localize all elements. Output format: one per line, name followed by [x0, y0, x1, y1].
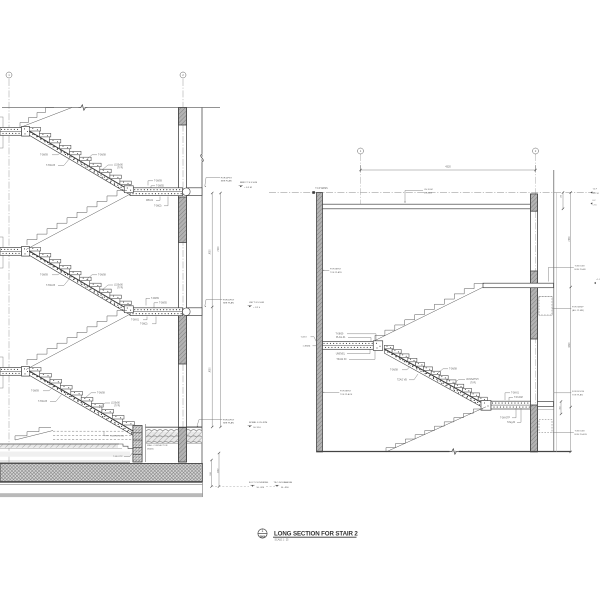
- svg-text:L150x90: L150x90: [114, 285, 124, 287]
- svg-text:SEE PLAN: SEE PLAN: [223, 421, 234, 424]
- svg-text:+5.1: +5.1: [596, 279, 600, 281]
- svg-text:ROBBL S CU-32M: ROBBL S CU-32M: [249, 422, 267, 424]
- svg-text:+ 6.3 M: + 6.3 M: [244, 187, 252, 189]
- svg-text:CH KUM: CH KUM: [424, 189, 433, 191]
- svg-text:T-06/08: T-06/08: [390, 370, 399, 372]
- svg-text:(TVF): (TVF): [470, 383, 476, 385]
- svg-text:T-08/05: T-08/05: [156, 186, 165, 188]
- svg-text:SCALE 1 : 25: SCALE 1 : 25: [275, 538, 290, 541]
- svg-text:T-06/08: T-06/08: [98, 155, 107, 157]
- svg-text:L150x90: L150x90: [114, 165, 124, 167]
- svg-text:T-08/09: T-08/09: [151, 298, 160, 300]
- svg-text:+ 3.2 k: + 3.2 k: [253, 307, 261, 309]
- svg-text:T-SW-05: T-SW-05: [46, 165, 56, 167]
- svg-text:FOR BENT: FOR BENT: [340, 391, 352, 393]
- svg-text:(TYP): (TYP): [117, 168, 123, 170]
- svg-text:(TYP): (TYP): [114, 406, 120, 408]
- svg-text:FOR DPSY: FOR DPSY: [223, 419, 235, 421]
- svg-text:T-08-01: T-08-01: [511, 393, 520, 395]
- svg-text:J600: J600: [210, 367, 212, 373]
- svg-text:FOR SNMP: FOR SNMP: [572, 307, 584, 309]
- svg-text:T-08/09: T-08/09: [31, 391, 40, 393]
- svg-text:TOE PLATE: TOE PLATE: [330, 271, 342, 274]
- svg-text:SL 31.0: SL 31.0: [253, 427, 261, 429]
- svg-text:FOR DPSY: FOR DPSY: [221, 177, 233, 179]
- svg-text:TZag-M: TZag-M: [507, 422, 515, 424]
- svg-text:TILO DOUBAEIGN: TILO DOUBAEIGN: [274, 481, 293, 484]
- svg-text:TOE PLAN: TOE PLAN: [572, 394, 583, 397]
- svg-text:1.4M(B): 1.4M(B): [303, 346, 311, 348]
- svg-text:T-08/09: T-08/09: [40, 275, 49, 277]
- svg-text:LONG SECTION FOR STAIR 2: LONG SECTION FOR STAIR 2: [274, 530, 358, 537]
- svg-text:T-08/09: T-08/09: [336, 334, 345, 336]
- svg-text:BOE PLAN: BOE PLAN: [575, 268, 586, 271]
- svg-text:B.O.T CLOVERING: B.O.T CLOVERING: [249, 482, 268, 484]
- svg-text:(ALL PLMN): (ALL PLMN): [572, 309, 584, 312]
- svg-text:L150x90: L150x90: [111, 403, 121, 405]
- svg-text:4320: 4320: [445, 166, 451, 169]
- svg-text:T-08-01: T-08-01: [131, 320, 140, 322]
- svg-text:FOR BENT: FOR BENT: [330, 269, 342, 271]
- svg-text:7430: 7430: [569, 236, 571, 242]
- svg-text:+8.1 M: +8.1 M: [593, 193, 600, 195]
- svg-text:T-08(2): T-08(2): [154, 206, 162, 208]
- svg-text:SL -350: SL -350: [281, 487, 289, 489]
- svg-text:LMY T.0.5 SLM: LMY T.0.5 SLM: [249, 302, 264, 304]
- svg-text:BOE PLACE: BOE PLACE: [575, 433, 588, 436]
- svg-text:T-08-OTP: T-08-OTP: [113, 456, 123, 458]
- svg-text:T-06/08: T-06/08: [449, 369, 458, 371]
- svg-text:(TYP): (TYP): [117, 288, 123, 290]
- svg-text:T.0.P: T.0.P: [593, 189, 598, 191]
- svg-text:FOR ROOM: FOR ROOM: [572, 391, 584, 393]
- svg-text:3604: 3604: [260, 535, 266, 539]
- svg-text:7200: 7200: [218, 246, 220, 252]
- svg-text:WALL CONNECTOR: WALL CONNECTOR: [147, 444, 168, 447]
- svg-text:SL -320: SL -320: [257, 487, 265, 489]
- svg-text:UCNSATSH: UCNSATSH: [466, 378, 479, 381]
- svg-text:SEE PLAN: SEE PLAN: [221, 179, 232, 182]
- svg-text:PLAG-01: PLAG-01: [336, 336, 346, 339]
- svg-text:T-08-OTP: T-08-OTP: [500, 418, 511, 420]
- svg-text:T-08-RM (TM): T-08-RM (TM): [110, 436, 124, 438]
- svg-text:TOB KUM: TOB KUM: [575, 266, 585, 268]
- svg-text:WB-01: WB-01: [146, 200, 154, 202]
- svg-text:BRIDY T.0.5 SLM: BRIDY T.0.5 SLM: [240, 182, 257, 184]
- svg-text:TZAGI 30: TZAGI 30: [336, 358, 347, 361]
- svg-text:TOB KUM: TOB KUM: [575, 431, 585, 433]
- svg-text:SEE PLAN: SEE PLAN: [223, 301, 234, 304]
- svg-text:T-08/09: T-08/09: [40, 155, 49, 157]
- svg-text:T-08/09: T-08/09: [154, 181, 163, 183]
- svg-text:MICBLB: MICBLB: [424, 193, 433, 195]
- svg-text:T.0.P ARMS: T.0.P ARMS: [315, 187, 328, 190]
- svg-text:UNEVEL: UNEVEL: [336, 353, 346, 355]
- svg-text:1: 1: [262, 529, 264, 533]
- svg-text:T-08/J: T-08/J: [301, 337, 307, 339]
- svg-text:T-06/08: T-06/08: [98, 275, 107, 277]
- svg-text:TOE PLACE: TOE PLACE: [340, 393, 353, 396]
- svg-text:FOR DPSY: FOR DPSY: [223, 299, 235, 301]
- svg-text:T-06/08: T-06/08: [97, 393, 106, 395]
- svg-text:T-08(2): T-08(2): [140, 324, 148, 326]
- svg-text:T-SW-05: T-SW-05: [38, 401, 48, 403]
- svg-text:J600: J600: [210, 249, 212, 255]
- svg-text:T-SW-05: T-SW-05: [46, 285, 56, 287]
- svg-text:4320: 4320: [569, 342, 571, 348]
- svg-text:T.03-DM: T.03-DM: [514, 397, 523, 399]
- svg-text:(W&B): (W&B): [147, 449, 154, 451]
- svg-text:TZAG VB: TZAG VB: [397, 379, 407, 382]
- svg-text:T-08/05: T-08/05: [159, 303, 168, 305]
